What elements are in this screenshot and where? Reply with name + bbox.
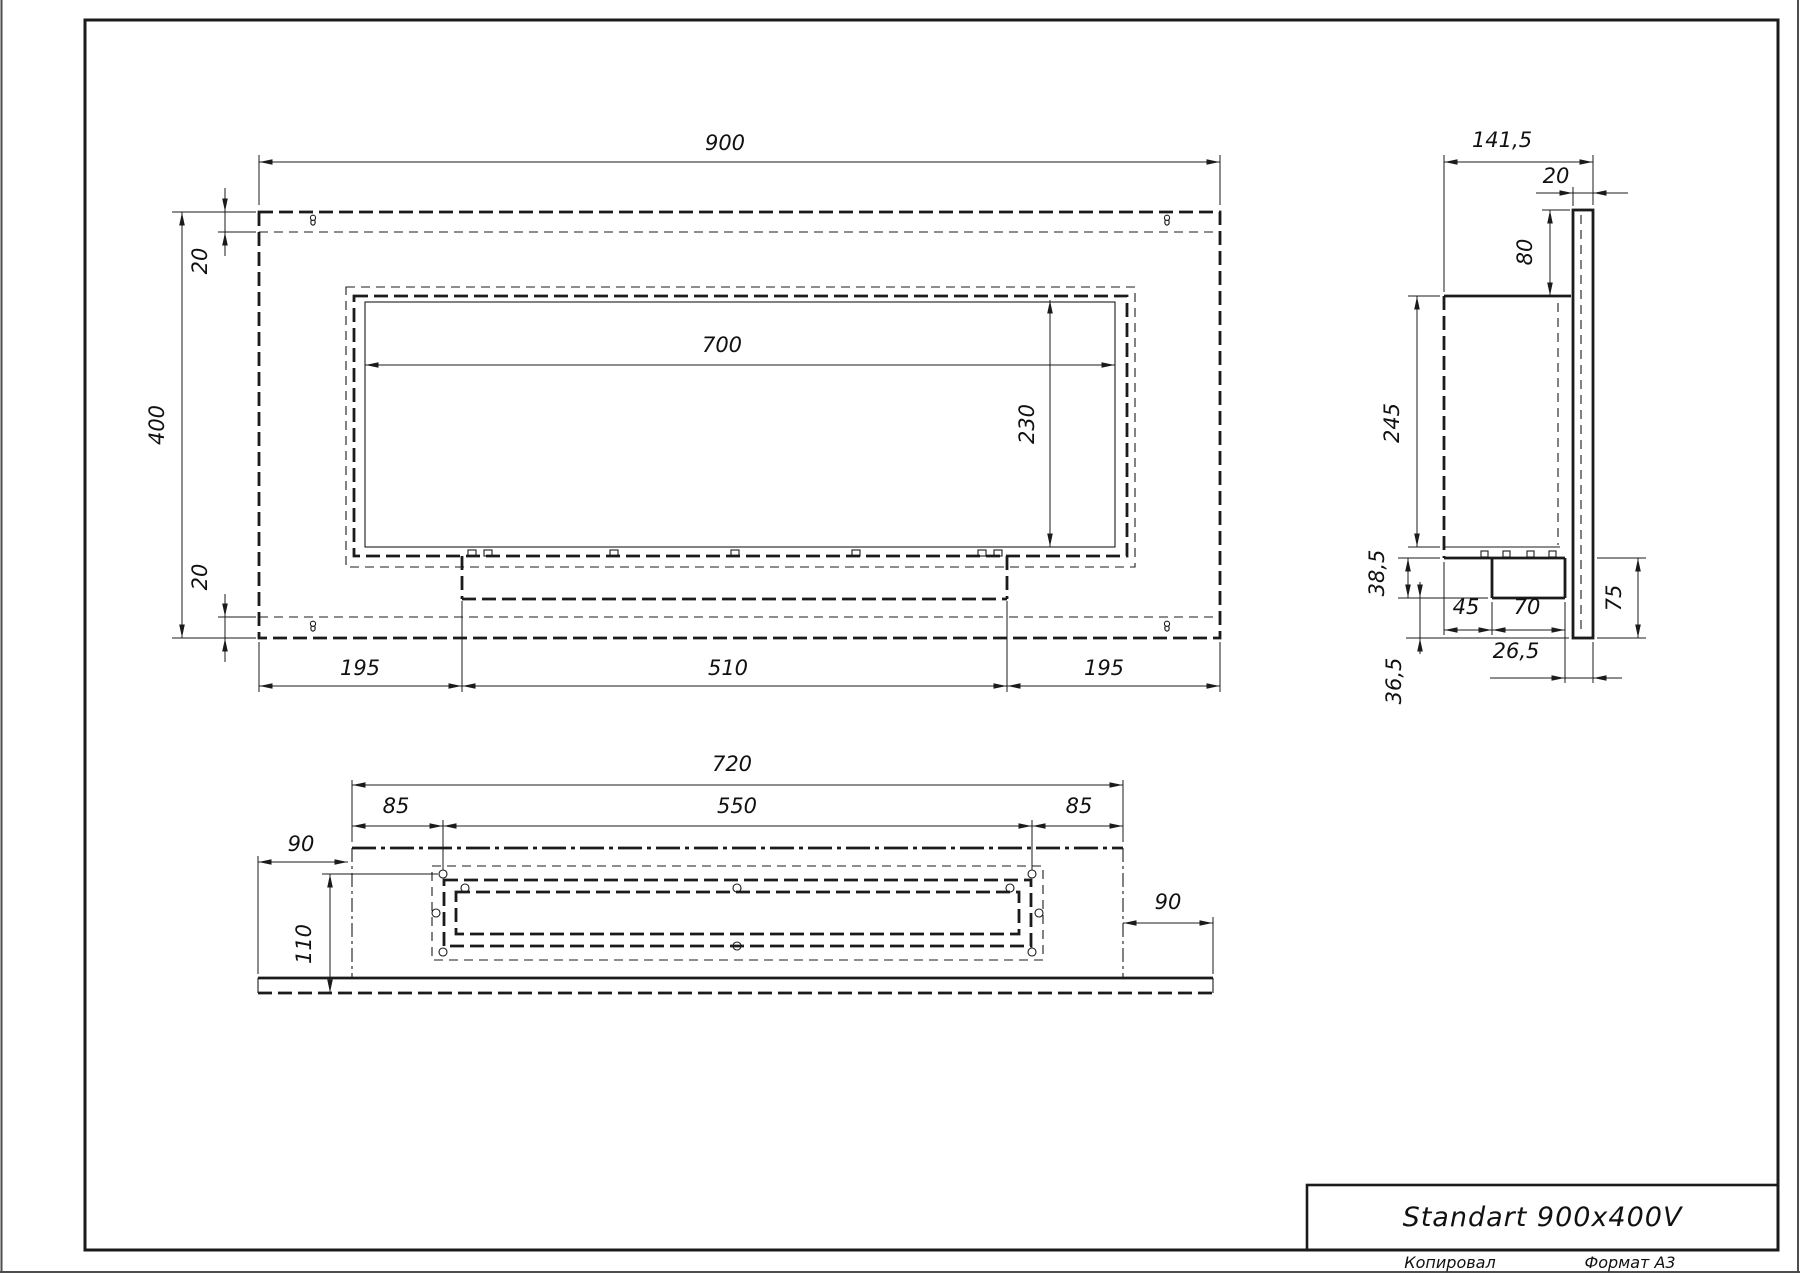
dim-label-side-75: 75 [1602, 585, 1626, 612]
page-edges [0, 0, 1800, 1273]
footer-copied-label: Копировал [1390, 1252, 1510, 1273]
dim-label-bottom-depth-110: 110 [292, 924, 316, 964]
dim-label-bottom-550: 550 [717, 794, 757, 818]
dim-label-side-depth-141-5: 141,5 [1472, 128, 1532, 152]
dim-label-front-center-510: 510 [708, 656, 748, 680]
dim-label-bottom-90-left: 90 [288, 832, 315, 856]
dim-label-front-height-400: 400 [145, 405, 169, 445]
dim-label-side-45: 45 [1453, 595, 1480, 619]
keyhole-icon [310, 621, 315, 631]
dim-label-side-38-5: 38,5 [1365, 550, 1389, 597]
dim-label-bottom-width-720: 720 [712, 752, 752, 776]
sheet-frame [85, 20, 1778, 1250]
dim-label-front-window-height-230: 230 [1015, 404, 1039, 444]
dim-label-side-top-80: 80 [1513, 239, 1537, 266]
front-view [172, 155, 1220, 692]
dim-label-front-right-195: 195 [1084, 656, 1124, 680]
dim-label-side-70: 70 [1514, 595, 1541, 619]
dim-label-side-body-245: 245 [1380, 403, 1404, 443]
footer-format-label: Формат A3 [1555, 1252, 1705, 1273]
keyhole-icon [1164, 215, 1169, 225]
keyhole-icon [1164, 621, 1169, 631]
dim-label-side-panel-20: 20 [1543, 164, 1570, 188]
keyhole-icon [310, 215, 315, 225]
dim-label-front-left-195: 195 [340, 656, 380, 680]
dim-label-bottom-85-right: 85 [1066, 794, 1093, 818]
screw-holes [432, 870, 1043, 956]
dim-label-bottom-85-left: 85 [383, 794, 410, 818]
dimension-labels: 9002040020700230195510195141,5208024538,… [145, 128, 1626, 964]
side-slot-ticks [1481, 551, 1556, 557]
dim-label-front-width-900: 900 [705, 131, 745, 155]
dim-label-front-offset-20-bottom: 20 [188, 564, 212, 591]
dim-label-bottom-90-right: 90 [1155, 890, 1182, 914]
dim-label-side-26-5: 26,5 [1493, 639, 1540, 663]
drawing-svg: 9002040020700230195510195141,5208024538,… [0, 0, 1800, 1273]
drawing-sheet: 9002040020700230195510195141,5208024538,… [0, 0, 1800, 1273]
title-block-product-name: Standart 900x400V [1307, 1185, 1778, 1250]
dim-label-front-window-width-700: 700 [702, 333, 742, 357]
dim-label-front-offset-20-top: 20 [188, 248, 212, 275]
dim-label-side-36-5: 36,5 [1382, 658, 1406, 705]
